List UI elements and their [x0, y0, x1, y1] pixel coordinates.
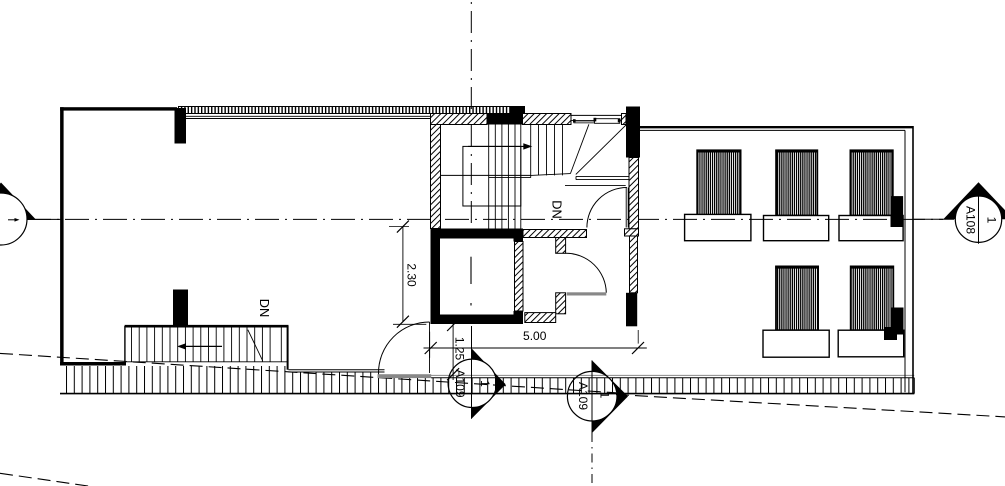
svg-text:5.00: 5.00	[523, 329, 547, 343]
svg-text:1: 1	[985, 217, 999, 224]
svg-text:1: 1	[478, 380, 492, 387]
svg-text:A109: A109	[576, 382, 590, 410]
svg-text:A108: A108	[964, 206, 978, 234]
svg-text:DN: DN	[257, 299, 272, 317]
svg-text:2.30: 2.30	[405, 263, 419, 287]
svg-text:1: 1	[598, 392, 612, 399]
svg-text:DN: DN	[550, 200, 565, 218]
svg-text:A109: A109	[453, 369, 467, 397]
svg-text:1.25: 1.25	[453, 337, 467, 361]
